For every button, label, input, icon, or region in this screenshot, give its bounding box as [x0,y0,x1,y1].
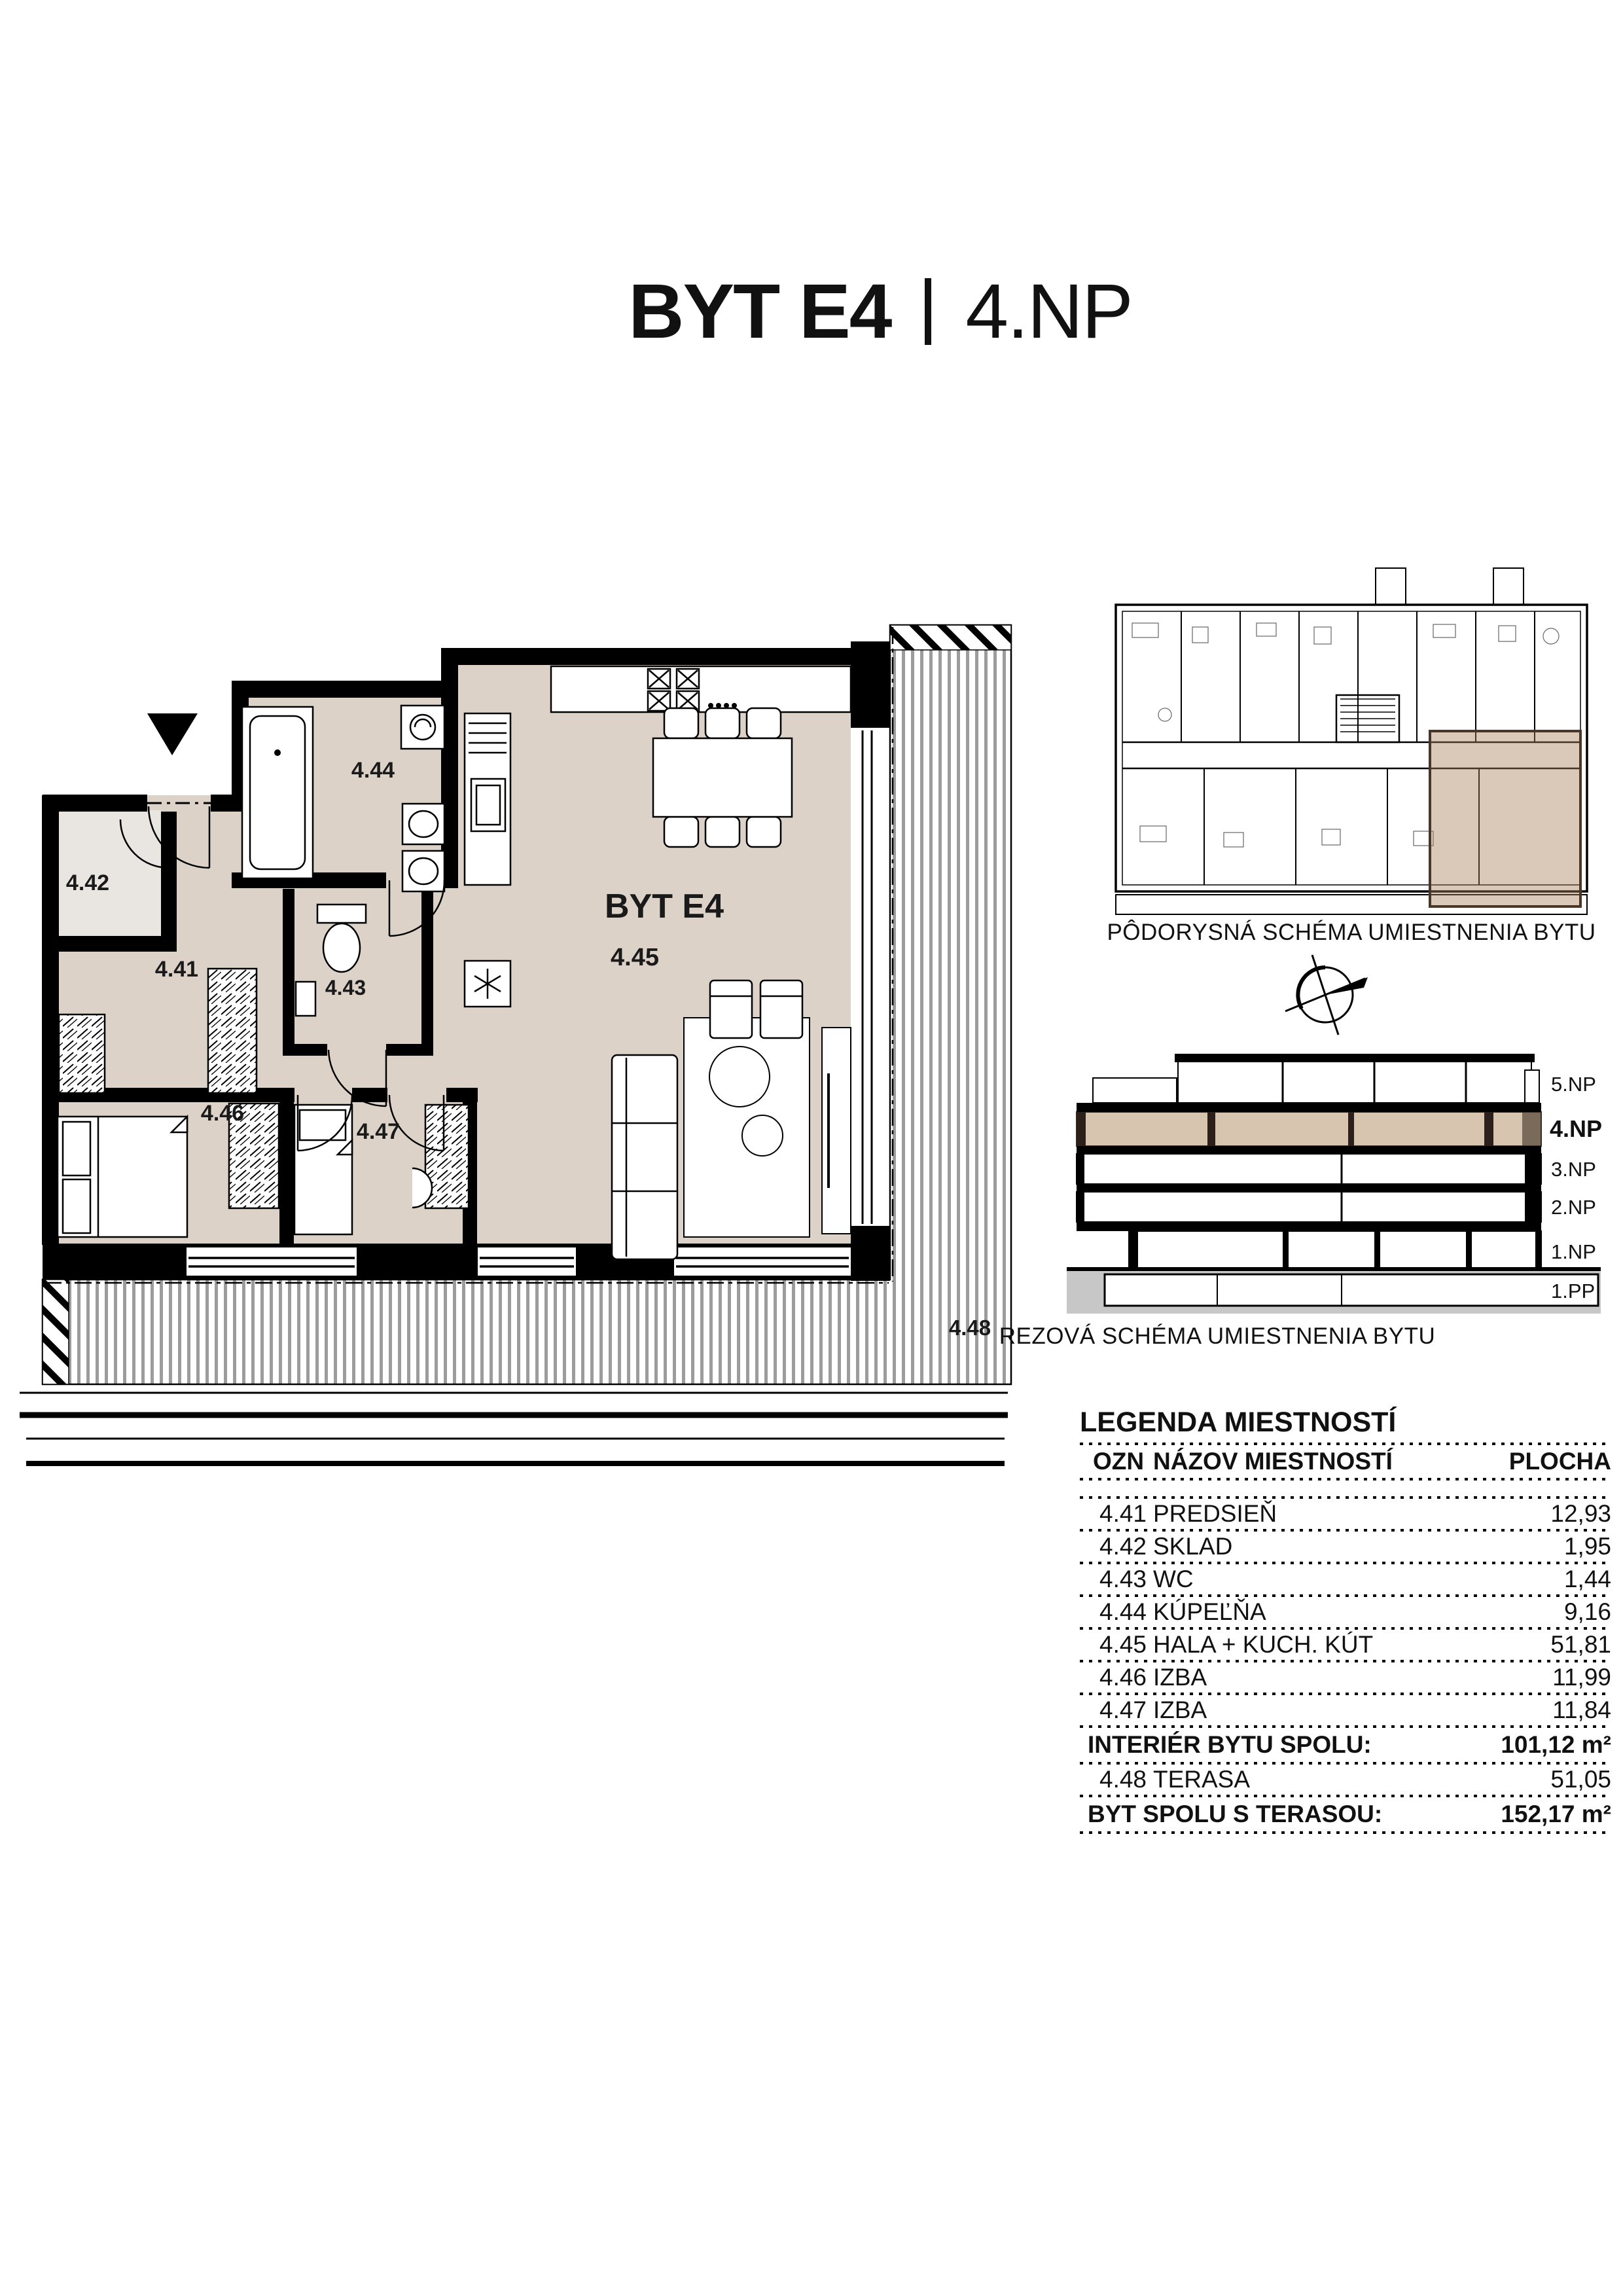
row-name: HALA + KUCH. KÚT [1153,1631,1550,1659]
washing-machine [401,706,444,749]
row-name: TERASA [1153,1766,1550,1793]
row-ozn: 4.42 [1080,1533,1153,1560]
bathtub [242,707,313,878]
row-ozn: 4.48 [1080,1766,1153,1793]
floor-5np [1093,1054,1539,1103]
legend-row: 4.45 HALA + KUCH. KÚT 51,81 [1080,1630,1611,1660]
kitchen-side-counter [465,713,510,885]
legend-row: 4.43 WC 1,44 [1080,1564,1611,1594]
room-label-4-42: 4.42 [66,870,109,895]
row-name: WC [1153,1566,1564,1593]
bathroom-sink [402,804,444,844]
legend-grand-total-row: BYT SPOLU S TERASOU: 152,17 m² [1080,1797,1611,1831]
row-area: 11,99 [1552,1664,1611,1691]
room-label-4-46: 4.46 [201,1101,244,1126]
dining-table [653,708,792,847]
bathroom-sink [402,851,444,891]
room-label-4-45: 4.45 [611,944,659,971]
floor-id-title: 4.NP [965,267,1132,356]
room-label-4-47: 4.47 [357,1119,400,1144]
legend-row: 4.41 PREDSIEŇ 12,93 [1080,1499,1611,1529]
legend-header-row: OZN NÁZOV MIESTNOSTÍ PLOCHA [1080,1445,1611,1478]
page: { "page": { "title_main": "BYT E4", "tit… [0,0,1623,2296]
floor-label-4np: 4.NP [1550,1115,1602,1142]
row-name: SKLAD [1153,1533,1564,1560]
window-gap [478,1247,576,1276]
building-floorplan-schema [1106,564,1597,918]
legend-title: LEGENDA MIESTNOSTÍ [1080,1405,1611,1443]
grand-total-value: 152,17 m² [1501,1801,1611,1828]
col-header-nazov: NÁZOV MIESTNOSTÍ [1153,1448,1509,1475]
row-area: 9,16 [1564,1598,1611,1626]
floor-label-1np: 1.NP [1551,1240,1596,1263]
row-ozn: 4.47 [1080,1696,1153,1724]
spacer [1080,1480,1611,1496]
row-ozn: 4.41 [1080,1500,1153,1528]
terrace-edge-ticks [890,625,1011,650]
col-header-ozn: OZN [1080,1448,1153,1475]
main-floor-plan: 4.42 4.41 4.43 4.44 BYT E4 4.45 4.46 4.4… [20,615,1027,1518]
row-ozn: 4.43 [1080,1566,1153,1593]
armchair [760,980,802,1038]
legend-row: 4.47 IZBA 11,84 [1080,1695,1611,1725]
window-gap [674,1247,851,1276]
double-bed [58,1117,187,1237]
building-section-schema: 5.NP 4.NP 3.NP 2.NP 1.NP 1.PP [1067,1044,1623,1325]
interior-total-label: INTERIÉR BYTU SPOLU: [1080,1731,1501,1759]
terrace-left-edge-hatch [43,1280,69,1384]
row-area: 11,84 [1552,1696,1611,1724]
entrance-arrow-icon [147,713,198,755]
floorplan-schema-caption: PÔDORYSNÁ SCHÉMA UMIESTNENIA BYTU [1106,920,1597,946]
room-label-4-41: 4.41 [155,957,198,982]
row-area: 51,81 [1550,1631,1611,1659]
rug [684,1018,810,1237]
row-ozn: 4.46 [1080,1664,1153,1691]
row-area: 51,05 [1550,1766,1611,1793]
page-title: BYT E4 4.NP [0,267,1623,356]
tv-cabinet [822,1028,851,1234]
sofa [612,1055,677,1259]
floor-4np-highlighted [1077,1103,1541,1154]
row-area: 12,93 [1550,1500,1611,1528]
divider [1080,1831,1611,1834]
armchair [710,980,752,1038]
room-label-4-48: 4.48 [949,1316,991,1340]
apartment-label: BYT E4 [605,888,724,925]
grand-total-label: BYT SPOLU S TERASOU: [1080,1801,1501,1828]
legend-row: 4.42 SKLAD 1,95 [1080,1532,1611,1562]
apartment-id-title: BYT E4 [628,267,891,356]
highlighted-apartment [1430,731,1580,906]
north-compass-icon [1276,952,1374,1037]
legend-interior-total-row: INTERIÉR BYTU SPOLU: 101,12 m² [1080,1728,1611,1762]
row-area: 1,95 [1564,1533,1611,1560]
row-name: PREDSIEŇ [1153,1500,1550,1528]
basement [1105,1274,1598,1306]
kitchen-appliance-star [465,961,510,1007]
south-wall [43,1244,890,1280]
legend-row: 4.46 IZBA 11,99 [1080,1662,1611,1693]
row-name: KÚPEĽŇA [1153,1598,1564,1626]
row-ozn: 4.45 [1080,1631,1153,1659]
kitchen-counter [551,666,851,712]
legend-row: 4.44 KÚPEĽŇA 9,16 [1080,1597,1611,1627]
floor-label-2np: 2.NP [1551,1196,1596,1219]
row-ozn: 4.44 [1080,1598,1153,1626]
hall-wardrobe [208,969,257,1093]
interior-total-value: 101,12 m² [1501,1731,1611,1759]
floor-2np [1077,1192,1541,1231]
title-separator-bar [925,278,931,345]
row-area: 1,44 [1564,1566,1611,1593]
room-label-4-44: 4.44 [351,758,395,783]
legend-terasa-row: 4.48 TERASA 51,05 [1080,1765,1611,1795]
window-gap [187,1247,357,1276]
floor-label-3np: 3.NP [1551,1158,1596,1181]
floor-label-1pp: 1.PP [1551,1280,1595,1302]
section-schema-caption: REZOVÁ SCHÉMA UMIESTNENIA BYTU [988,1323,1446,1350]
col-header-plocha: PLOCHA [1509,1448,1611,1475]
row-name: IZBA [1153,1696,1552,1724]
row-name: IZBA [1153,1664,1552,1691]
floor-label-5np: 5.NP [1551,1073,1596,1096]
floor-1np [1129,1231,1541,1268]
hall-wardrobe [59,1014,105,1093]
east-wall [851,641,890,1281]
legend-table: LEGENDA MIESTNOSTÍ OZN NÁZOV MIESTNOSTÍ … [1080,1405,1611,1834]
wc-sink [296,982,315,1016]
room-label-4-43: 4.43 [325,976,366,999]
floor-3np [1077,1154,1541,1192]
site-edge-lines [20,1393,1008,1463]
